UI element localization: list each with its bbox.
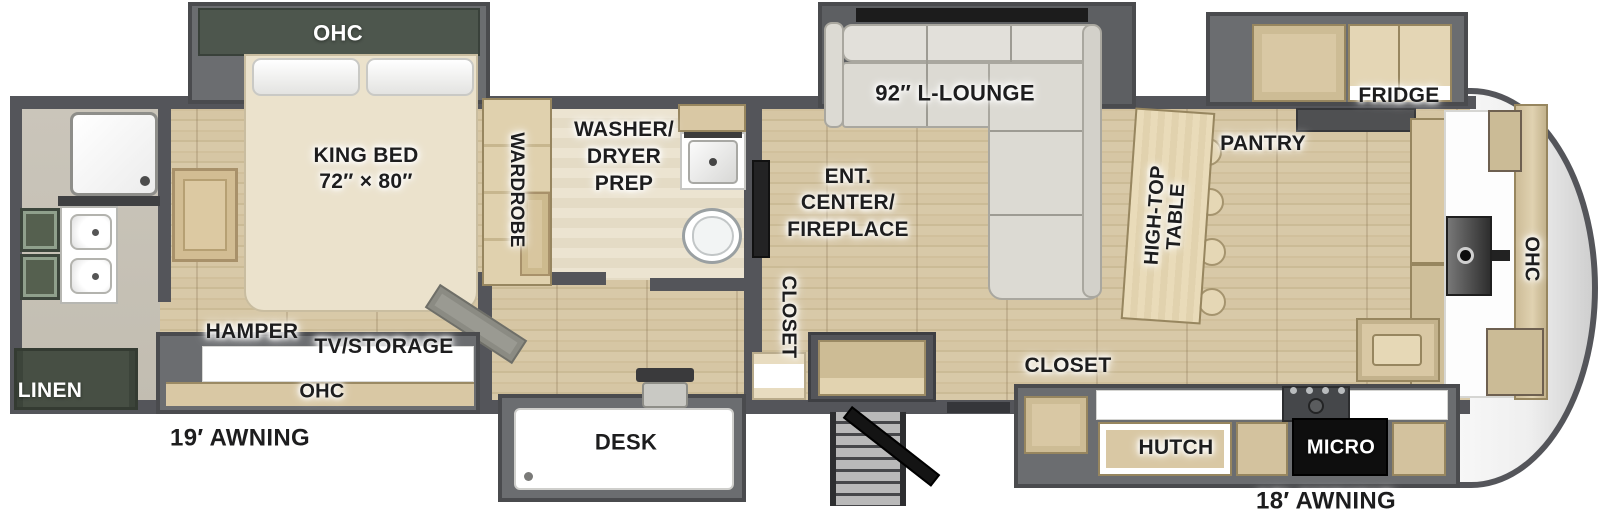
cooktop-burner-2 (1306, 387, 1313, 394)
vanity-sink-2-drain (92, 273, 99, 280)
pantry-counter (1296, 108, 1416, 132)
ent-label-1: ENT. (825, 166, 872, 188)
laundry-upper-cabinet (678, 104, 746, 132)
awning-door-label: 18′ AWNING (1256, 488, 1396, 513)
laundry-label-1: WASHER/ (574, 119, 674, 141)
fridge-label: FRIDGE (1358, 85, 1439, 107)
cooktop-burner-4 (1338, 387, 1345, 394)
linen-label: LINEN (18, 380, 83, 402)
tv-storage-ohc-label: OHC (299, 382, 344, 403)
toilet-seat (692, 216, 734, 256)
vanity-sink-1-drain (92, 229, 99, 236)
ent-label-2: CENTER/ (801, 192, 895, 214)
shower-drain (140, 176, 150, 186)
sofa-bolster-right (1082, 24, 1102, 298)
pillow-right (366, 58, 474, 96)
pillow-left (252, 58, 360, 96)
ent-center-fireplace (752, 160, 770, 258)
sofa-seam (926, 26, 928, 126)
vanity-sink-2 (70, 258, 112, 294)
laundry-label-2: DRYER (587, 146, 661, 168)
ent-label-3: FIREPLACE (787, 219, 909, 241)
mid-closet-shelf (752, 352, 806, 400)
cooktop-burner-1 (1290, 387, 1297, 394)
entry-cabinet-shelves (818, 340, 926, 396)
bed-ohc-label: OHC (313, 21, 363, 44)
medicine-cabinet-1 (20, 208, 60, 252)
sofa-arm-left (824, 22, 844, 128)
kitchen-base-cabinet-right (1392, 422, 1446, 476)
wall-laundry-bottom-right (650, 278, 746, 291)
wall-laundry-bottom-left (552, 272, 606, 285)
shower-ledge (58, 196, 160, 206)
bath-door (172, 168, 238, 262)
front-upper-cabinet-bottom (1486, 328, 1544, 396)
pantry-cabinets (1410, 118, 1446, 264)
laundry-sink-drain (709, 158, 717, 166)
laundry-faucet (684, 132, 742, 138)
mid-closet-label: CLOSET (778, 276, 799, 359)
cooktop-burner-3 (1322, 387, 1329, 394)
wardrobe-label: WARDROBE (506, 132, 526, 247)
vanity-sink-1 (70, 214, 112, 250)
rv-floorplan: LINEN OHC KING BED 72″ × 80″ WARDROBE WA… (0, 0, 1600, 513)
lounge-slide-window (856, 8, 1088, 22)
sofa-seam (990, 130, 1082, 132)
micro-label: MICRO (1307, 438, 1375, 459)
desk-chair-back (636, 368, 694, 382)
desk-grommet (524, 472, 533, 481)
cooktop-center (1308, 398, 1324, 414)
bottom-wall-window (947, 402, 1010, 413)
kitchen-counter (1096, 390, 1448, 420)
desk-label: DESK (595, 430, 657, 453)
front-tv-mount (1492, 250, 1510, 261)
front-ohc-label: OHC (1521, 236, 1542, 281)
awning-offdoor-label: 19′ AWNING (170, 425, 310, 450)
sofa-seam (990, 214, 1082, 216)
lounge-label: 92″ L-LOUNGE (875, 81, 1035, 104)
front-upper-cabinet-top (1488, 110, 1522, 172)
kitchen-base-cabinet-left (1236, 422, 1288, 476)
bed-size-label: 72″ × 80″ (319, 171, 412, 193)
desk-chair-seat (642, 382, 688, 408)
hutch-label: HUTCH (1139, 437, 1214, 459)
medicine-cabinet-2 (20, 254, 60, 300)
kitchen-closet-label: CLOSET (1025, 355, 1112, 377)
laundry-label-3: PREP (595, 173, 653, 195)
kitchen-island-drawer (1372, 334, 1422, 366)
front-tv-camera-dot (1460, 250, 1471, 261)
hightop-label: HIGH-TOP TABLE (1142, 165, 1191, 267)
pantry-upper-cabinet (1252, 24, 1346, 102)
pantry-label: PANTRY (1220, 133, 1306, 155)
hamper-label: HAMPER (206, 321, 299, 343)
tv-storage-label: TV/STORAGE (314, 336, 453, 358)
kitchen-closet-front (1024, 396, 1088, 454)
sofa-back (842, 24, 1100, 62)
bed-label: KING BED (313, 145, 418, 167)
